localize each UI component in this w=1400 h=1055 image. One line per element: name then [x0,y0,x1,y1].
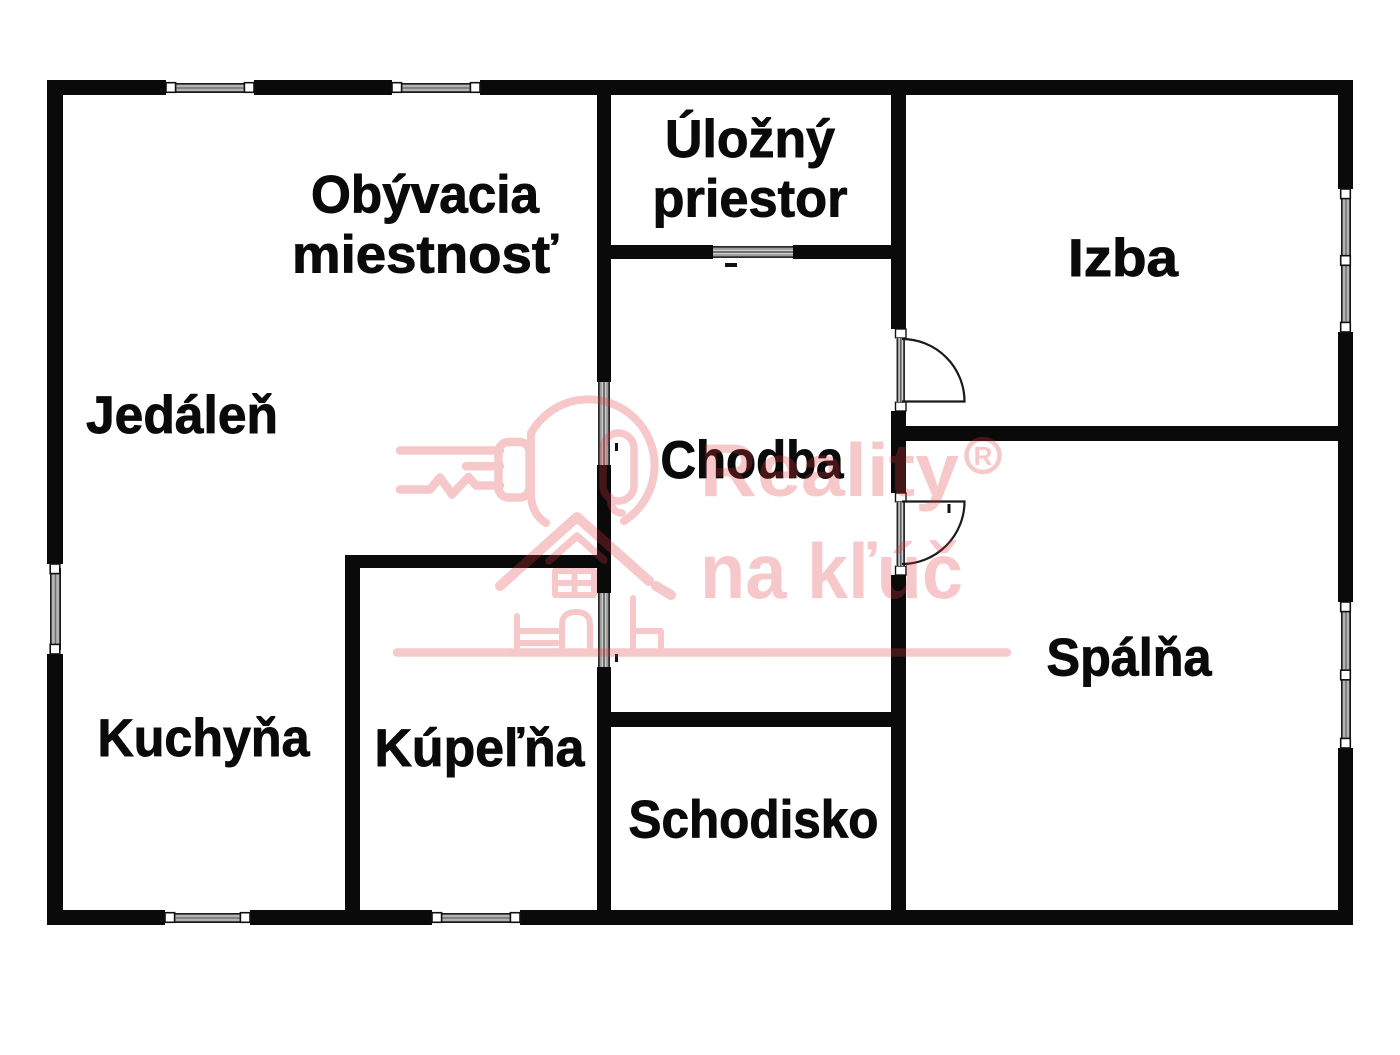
svg-text:R: R [974,441,993,471]
svg-text:Reality: Reality [700,428,959,512]
svg-text:na kľúč: na kľúč [700,527,963,615]
svg-text:miestnosť: miestnosť [292,226,559,285]
svg-text:Úložný: Úložný [665,109,836,169]
svg-text:Kuchyňa: Kuchyňa [98,709,310,768]
svg-text:Obývacia: Obývacia [311,166,539,225]
svg-text:Jedáleň: Jedáleň [86,386,278,445]
svg-text:Spálňa: Spálňa [1047,629,1212,688]
svg-text:Schodisko: Schodisko [629,791,879,850]
svg-text:Kúpeľňa: Kúpeľňa [375,719,586,778]
svg-text:Izba: Izba [1068,229,1179,288]
svg-text:priestor: priestor [653,170,848,229]
